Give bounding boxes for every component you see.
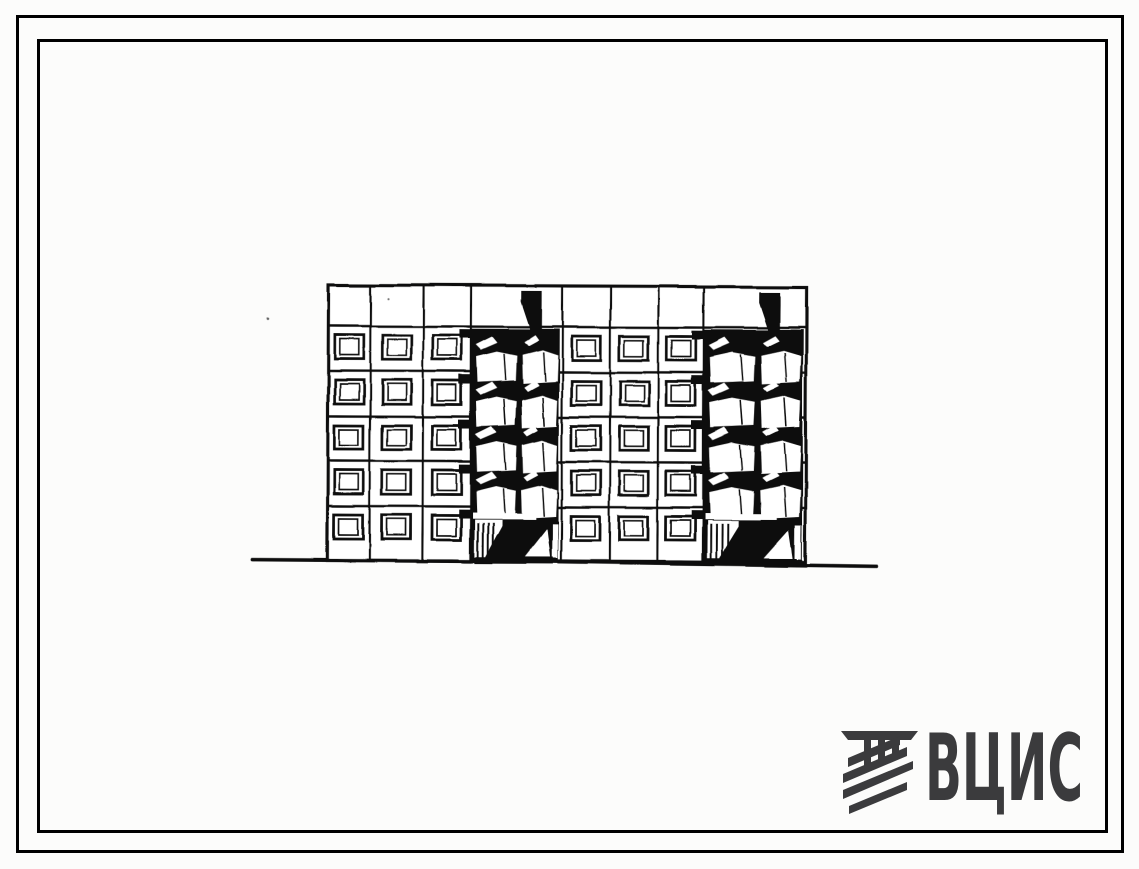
window: [620, 336, 649, 360]
window: [335, 380, 364, 404]
loggia-parapet: [709, 443, 754, 473]
scan-speck: [266, 318, 269, 321]
pillar-capital: [841, 731, 918, 740]
window: [572, 336, 601, 360]
loggia-parapet: [476, 397, 516, 427]
window: [334, 515, 363, 539]
logo-icon: [841, 731, 918, 814]
loggia-parapet: [476, 442, 516, 472]
window: [433, 335, 462, 359]
window: [334, 470, 363, 494]
window: [665, 516, 694, 540]
slab-edge: [691, 376, 705, 385]
loggia-stack-column: [458, 291, 559, 564]
slab-edge: [691, 421, 705, 430]
window: [571, 516, 600, 540]
window: [432, 425, 461, 449]
window: [433, 380, 462, 404]
loggia-parapet: [477, 352, 517, 382]
window: [432, 470, 461, 494]
loggia-parapet: [709, 398, 754, 428]
slab-edge: [459, 420, 473, 429]
window: [382, 335, 411, 359]
window: [382, 380, 411, 404]
loggia-parapet: [761, 351, 801, 384]
window: [666, 336, 695, 360]
window: [572, 381, 601, 405]
loggia-parapet: [760, 441, 800, 474]
entrance-canopy: [473, 513, 537, 519]
scan-speck: [387, 298, 389, 300]
panel-joint-line: [609, 286, 610, 561]
window: [619, 471, 648, 495]
window: [619, 516, 648, 540]
window: [382, 425, 411, 449]
loggia-parapet: [522, 350, 558, 383]
window: [666, 426, 695, 450]
entrance-ground-shadow: [706, 558, 797, 565]
window: [334, 425, 363, 449]
slab-edge: [691, 331, 705, 340]
window: [335, 335, 364, 359]
loggia-parapet: [709, 353, 754, 383]
slab-edge: [459, 375, 473, 384]
window: [571, 471, 600, 495]
loggia-stack-column: [690, 292, 803, 565]
window: [619, 426, 648, 450]
slab-edge: [459, 465, 473, 474]
loggia-parapet: [709, 488, 754, 518]
panel-joint-line: [422, 285, 423, 560]
window: [571, 426, 600, 450]
loggia-parapet: [522, 440, 558, 473]
loggia-parapet: [761, 396, 801, 429]
logo-text: ВЦИС: [925, 714, 1083, 817]
entrance-ground-shadow: [474, 557, 553, 564]
window: [382, 470, 411, 494]
window: [666, 471, 695, 495]
entrance-canopy: [705, 514, 777, 520]
panel-joint-line: [369, 285, 370, 560]
drawing-sheet: ВЦИС: [0, 0, 1139, 869]
loggia-parapet: [522, 395, 558, 428]
window: [432, 515, 461, 539]
slab-edge: [459, 330, 473, 339]
panel-joint-line: [657, 286, 658, 561]
loggia-parapet: [476, 487, 516, 517]
window: [666, 381, 695, 405]
panel-joint-line: [561, 286, 562, 561]
slab-edge: [691, 466, 705, 475]
logo: ВЦИС: [833, 712, 1088, 817]
window: [620, 381, 649, 405]
window: [381, 515, 410, 539]
